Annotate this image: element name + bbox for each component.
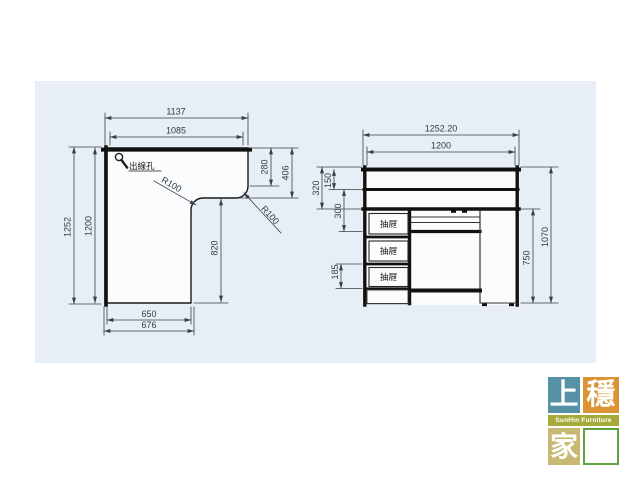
- front-dim-upper-section: 300: [333, 203, 343, 218]
- logo-char-bottom-left: 家: [550, 433, 578, 461]
- cable-hole-label: 出線孔: [129, 161, 155, 171]
- drawer-1: 抽屜: [369, 214, 408, 235]
- brand-logo: 上 穩 SunHin Furniture 家 居: [548, 377, 619, 465]
- plan-dim-width-inner: 1085: [166, 126, 186, 136]
- plan-dim-bottom-inner: 650: [141, 309, 156, 319]
- drawer-2: 抽屜: [369, 241, 408, 261]
- front-dim-total-height: 1070: [540, 227, 550, 247]
- pedestal-kick: [367, 290, 408, 304]
- plan-dim-width-outer: 1137: [166, 107, 185, 117]
- logo-band: SunHin Furniture: [548, 415, 619, 426]
- plan-dim-depth-inner: 1200: [84, 216, 94, 236]
- logo-square-bottom-right: 居: [583, 428, 619, 465]
- logo-char-top-right: 穩: [586, 381, 615, 410]
- logo-square-top-left: 上: [548, 377, 580, 413]
- drawer-2-label: 抽屜: [380, 246, 398, 256]
- logo-square-top-right: 穩: [583, 377, 619, 413]
- front-dim-hutch-total: 320: [311, 180, 321, 195]
- front-dim-width-outer: 1252.20: [425, 124, 458, 134]
- front-dim-width-inner: 1200: [431, 141, 451, 151]
- plan-dim-inner-edge: 820: [210, 240, 220, 255]
- plan-dim-right-depth-total: 406: [281, 165, 291, 180]
- logo-square-bottom-left: 家: [548, 428, 580, 465]
- logo-char-top-left: 上: [549, 381, 578, 410]
- logo-char-bottom-right: 居: [588, 433, 615, 460]
- technical-drawing: 出線孔: [0, 0, 640, 480]
- drawer-3-label: 抽屜: [380, 272, 398, 282]
- drawer-3: 抽屜: [369, 268, 408, 287]
- front-dim-drawer-front: 185: [330, 264, 340, 279]
- plan-dim-depth-outer: 1252: [63, 217, 73, 237]
- front-dim-under-top: 750: [522, 250, 532, 265]
- plan-dim-right-depth-upper: 280: [260, 159, 270, 174]
- drawer-1-label: 抽屜: [380, 219, 398, 229]
- plan-dim-bottom-outer: 676: [141, 320, 156, 330]
- logo-band-text: SunHin Furniture: [555, 417, 611, 424]
- front-dim-top-opening: 150: [323, 173, 333, 188]
